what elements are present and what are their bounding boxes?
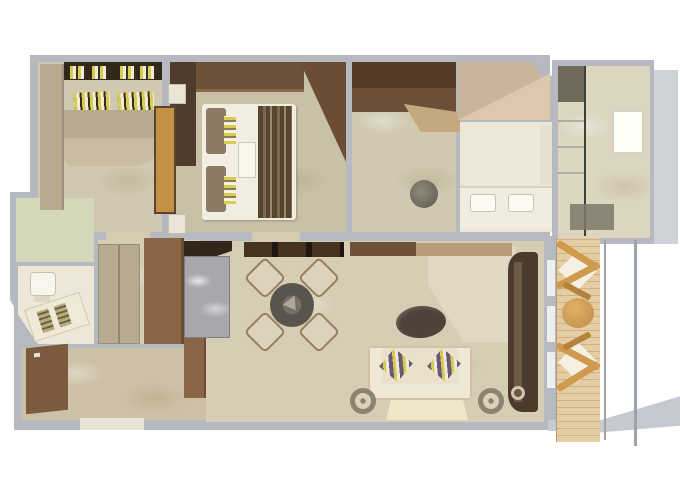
sofa-arm (458, 348, 470, 398)
balcony-railing (604, 240, 606, 440)
sofa-back (382, 384, 458, 398)
bed-pillow (206, 166, 226, 212)
towel (54, 303, 72, 328)
bed-runner (258, 106, 292, 218)
tv-console (508, 252, 538, 412)
shower-shelf (558, 120, 584, 122)
bunk-cushion (140, 66, 156, 79)
credenza (244, 242, 344, 257)
tv-screen (514, 262, 522, 402)
balcony-railing (634, 240, 637, 446)
suite-floor-plan (0, 0, 680, 486)
sliding-closet-door (98, 244, 140, 344)
credenza (350, 242, 416, 256)
closet-panel (144, 238, 184, 344)
bunk-cushion (120, 66, 136, 79)
lounge-chair (556, 246, 600, 298)
closet-wardrobe-interior (352, 62, 456, 88)
bed-pillow (206, 108, 226, 154)
side-table (478, 388, 504, 414)
daybed-seat (64, 138, 161, 166)
sink (470, 194, 496, 212)
dining-table-centerpiece (283, 293, 301, 311)
shower-mat (570, 204, 614, 230)
speaker-ring (511, 386, 525, 400)
bunk-cushion (92, 66, 108, 79)
sideboard-handle (34, 353, 40, 358)
balcony-door-glass (547, 352, 555, 388)
accent-pillow (224, 176, 236, 204)
shower-header (558, 66, 584, 102)
nightstand (168, 214, 186, 234)
dining-table (270, 283, 314, 327)
credenza (416, 243, 512, 256)
second-bedroom-wardrobe (40, 64, 64, 210)
sofa-pillow (379, 348, 413, 382)
balcony-door-glass (547, 260, 555, 296)
granite-column (184, 256, 230, 338)
bed-tray (238, 142, 256, 178)
nightstand (168, 84, 186, 104)
accent-pillow (224, 116, 236, 144)
sofa (368, 346, 472, 400)
side-table (350, 388, 376, 414)
shower-shelf (558, 172, 584, 174)
bedroom-wardrobe (196, 62, 304, 92)
sofa-pillow (427, 348, 461, 382)
window (612, 110, 644, 154)
toilet (30, 272, 56, 296)
balcony-door-glass (547, 306, 555, 342)
bedroom-doorway (252, 232, 300, 241)
rug (386, 400, 468, 420)
towel (36, 308, 54, 333)
shower-shelf (558, 146, 584, 148)
right-structure-band (654, 70, 678, 244)
dressing-pouf (410, 180, 438, 208)
wall-artwork (154, 106, 176, 214)
dining-cabinet (184, 338, 206, 398)
entry-sideboard (26, 344, 68, 414)
sink (508, 194, 534, 212)
balcony-table (562, 298, 594, 328)
lounge-chair (556, 334, 600, 386)
entry-door-threshold (80, 418, 144, 430)
bathroom-cabinet (540, 125, 552, 185)
bunk-cushion (70, 66, 86, 79)
